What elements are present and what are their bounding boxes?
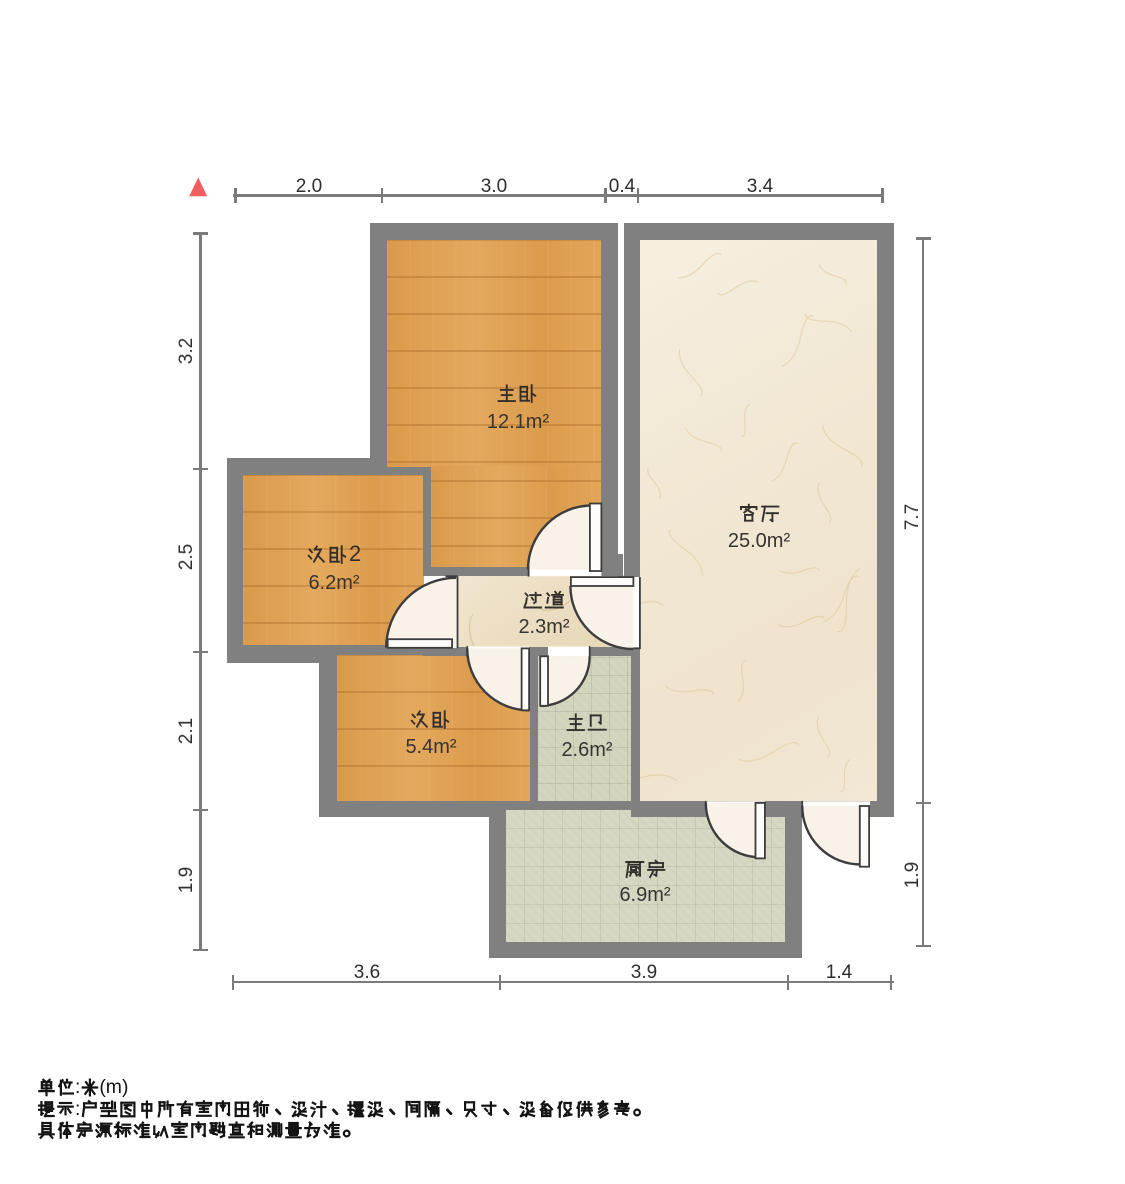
svg-text:): ) bbox=[122, 1076, 128, 1098]
svg-text::: : bbox=[75, 1076, 80, 1098]
svg-text:2: 2 bbox=[349, 541, 361, 566]
svg-text:m: m bbox=[106, 1076, 122, 1098]
svg-text::: : bbox=[75, 1098, 80, 1120]
